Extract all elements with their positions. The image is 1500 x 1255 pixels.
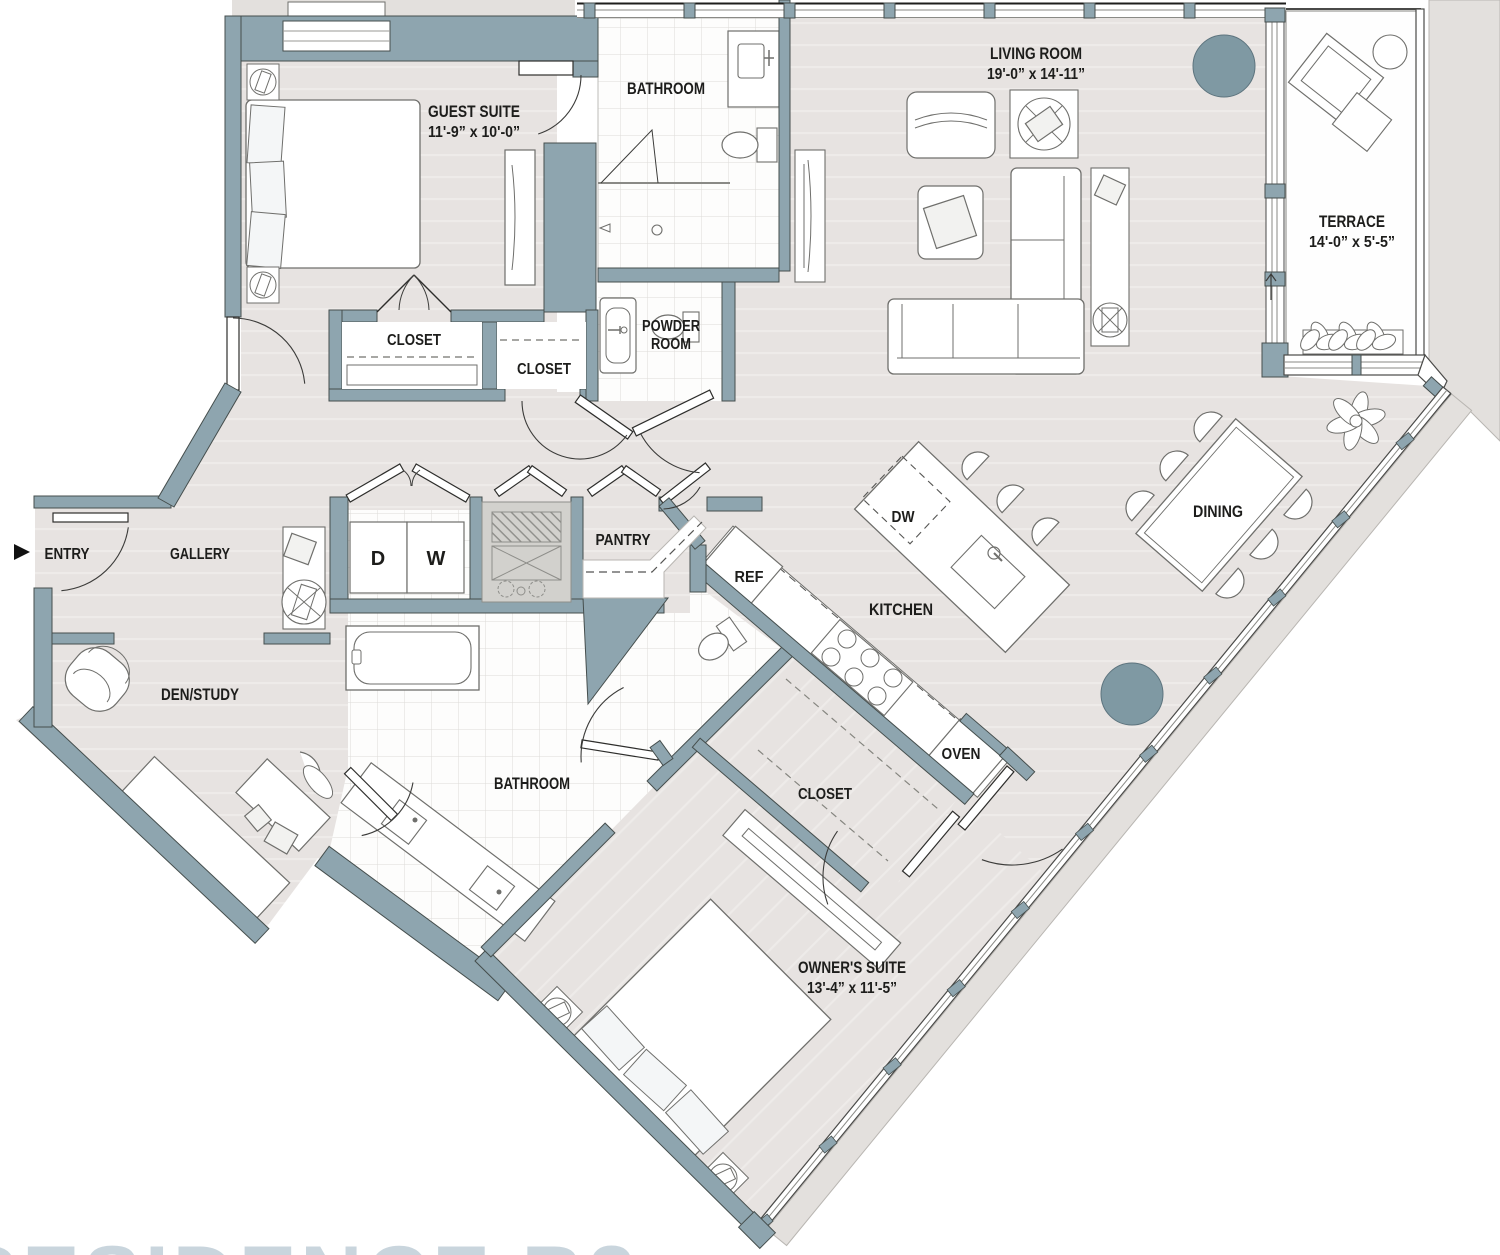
svg-text:CLOSET: CLOSET — [387, 332, 441, 349]
svg-text:W: W — [427, 548, 446, 570]
svg-text:OVEN: OVEN — [942, 746, 981, 763]
svg-text:BATHROOM: BATHROOM — [627, 79, 705, 98]
svg-text:REF: REF — [735, 569, 764, 586]
svg-text:TERRACE: TERRACE — [1319, 212, 1385, 231]
svg-text:DEN/STUDY: DEN/STUDY — [161, 685, 240, 704]
svg-text:DW: DW — [892, 509, 915, 526]
svg-text:BATHROOM: BATHROOM — [494, 774, 570, 793]
svg-text:D: D — [371, 548, 385, 570]
svg-text:DINING: DINING — [1193, 502, 1243, 521]
svg-text:ROOM: ROOM — [651, 336, 691, 353]
svg-text:PANTRY: PANTRY — [596, 532, 652, 549]
svg-text:CLOSET: CLOSET — [517, 361, 571, 378]
svg-text:14'-0” x 5'-5”: 14'-0” x 5'-5” — [1309, 234, 1395, 251]
svg-text:CLOSET: CLOSET — [798, 786, 852, 803]
svg-text:GUEST SUITE: GUEST SUITE — [428, 102, 520, 121]
svg-text:RESIDENCE B2: RESIDENCE B2 — [0, 1229, 640, 1255]
svg-text:11'-9” x 10'-0”: 11'-9” x 10'-0” — [428, 124, 520, 141]
svg-text:19'-0” x 14'-11”: 19'-0” x 14'-11” — [987, 66, 1085, 83]
svg-text:13'-4” x 11'-5”: 13'-4” x 11'-5” — [807, 980, 897, 997]
svg-text:ENTRY: ENTRY — [45, 546, 91, 563]
svg-text:OWNER'S SUITE: OWNER'S SUITE — [798, 958, 906, 977]
svg-text:KITCHEN: KITCHEN — [869, 600, 933, 619]
svg-text:LIVING ROOM: LIVING ROOM — [990, 44, 1082, 63]
svg-text:POWDER: POWDER — [642, 318, 700, 335]
svg-text:GALLERY: GALLERY — [170, 546, 231, 563]
